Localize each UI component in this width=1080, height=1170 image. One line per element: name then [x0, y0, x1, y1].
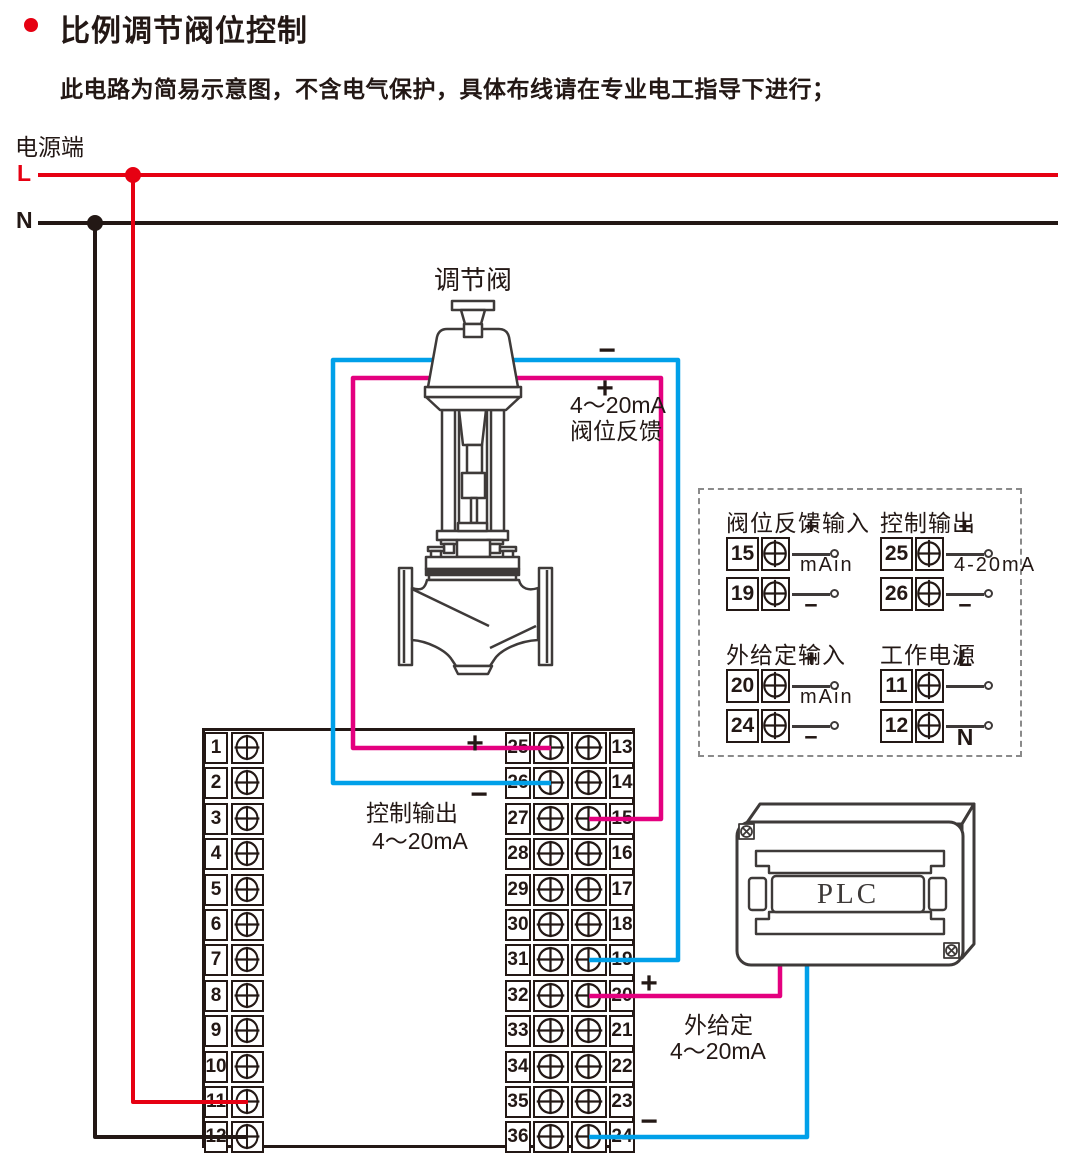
page-subtitle: 此电路为简易示意图，不含电气保护，具体布线请在专业电工指导下进行；	[60, 70, 836, 104]
live-junction-dot	[125, 167, 141, 183]
neutral-line-label: N	[16, 207, 33, 234]
wire-live-branch	[133, 175, 248, 1102]
bullet-icon	[24, 18, 38, 32]
control-output-range-label: 4～20mA	[372, 822, 468, 856]
plc-label: PLC	[772, 876, 924, 912]
power-terminal-label: 电源端	[15, 128, 84, 162]
page-title: 比例调节阀位控制	[60, 6, 308, 50]
valve-minus-sign: −	[592, 333, 622, 369]
setpoint-range-label: 4～20mA	[670, 1032, 766, 1066]
setpoint-minus-sign: −	[634, 1104, 664, 1140]
neutral-junction-dot	[87, 215, 103, 231]
wiring-diagram-page: 比例调节阀位控制 此电路为简易示意图，不含电气保护，具体布线请在专业电工指导下进…	[0, 0, 1080, 1170]
control-valve-drawing	[380, 295, 570, 680]
live-line-label: L	[17, 160, 31, 187]
control-output-plus-sign: +	[460, 726, 490, 762]
control-output-minus-sign: −	[464, 777, 494, 813]
valve-label: 调节阀	[434, 260, 512, 297]
feedback-name-label: 阀位反馈	[570, 412, 662, 446]
setpoint-plus-sign: +	[634, 966, 664, 1002]
wire-neutral-branch	[95, 223, 248, 1137]
